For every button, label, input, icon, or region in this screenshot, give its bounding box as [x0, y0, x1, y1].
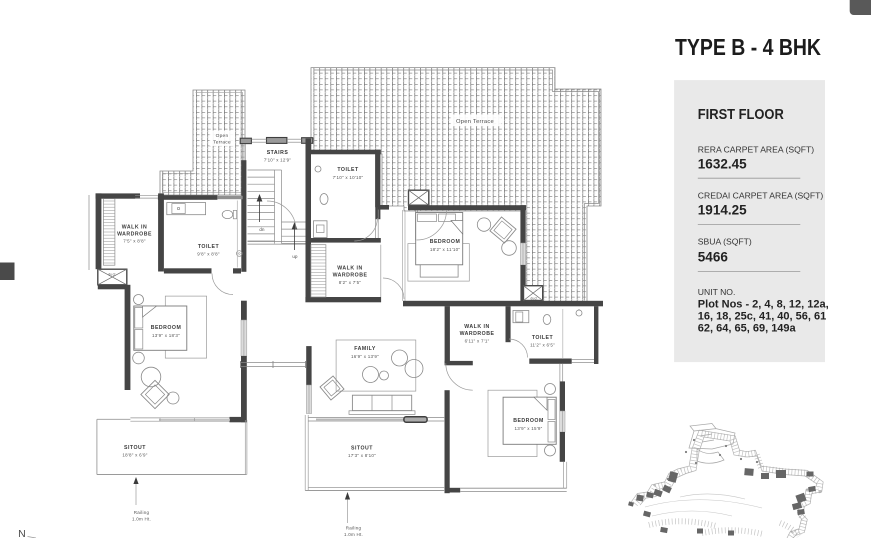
svg-text:BEDROOM: BEDROOM [430, 239, 461, 245]
svg-text:1914.25: 1914.25 [698, 203, 747, 218]
svg-text:up: up [292, 254, 298, 259]
svg-text:FAMILY: FAMILY [354, 346, 376, 352]
svg-text:8'2" x 7'5": 8'2" x 7'5" [339, 280, 362, 285]
svg-text:9'8" x 8'8": 9'8" x 8'8" [197, 252, 220, 257]
svg-text:FIRST FLOOR: FIRST FLOOR [698, 107, 784, 123]
svg-text:1.0m Ht.: 1.0m Ht. [132, 517, 151, 522]
svg-text:18'2" x 11'10": 18'2" x 11'10" [430, 247, 461, 252]
svg-text:Railing: Railing [346, 526, 362, 531]
svg-text:TYPE B - 4 BHK: TYPE B - 4 BHK [675, 34, 821, 60]
svg-text:Open Terrace: Open Terrace [456, 119, 494, 125]
svg-text:Open: Open [216, 133, 229, 139]
svg-text:WARDROBE: WARDROBE [333, 273, 368, 279]
svg-text:11'2" x 6'5": 11'2" x 6'5" [530, 343, 555, 348]
svg-text:16, 18, 25c, 41, 40, 56, 61: 16, 18, 25c, 41, 40, 56, 61 [698, 311, 826, 323]
svg-text:WALK IN: WALK IN [337, 266, 362, 272]
svg-text:6'11" x 7'1": 6'11" x 7'1" [465, 339, 490, 344]
svg-text:BEDROOM: BEDROOM [513, 418, 544, 424]
svg-text:13'9" x 15'9": 13'9" x 15'9" [515, 426, 543, 431]
svg-text:BEDROOM: BEDROOM [151, 325, 182, 331]
svg-text:UNIT NO.: UNIT NO. [698, 287, 736, 297]
svg-text:TOILET: TOILET [337, 167, 359, 173]
svg-text:16'9" x 13'9": 16'9" x 13'9" [351, 354, 379, 359]
svg-text:CREDAI CARPET AREA (SQFT): CREDAI CARPET AREA (SQFT) [698, 191, 824, 201]
svg-text:Railing: Railing [134, 510, 150, 515]
svg-text:SITOUT: SITOUT [351, 446, 373, 452]
svg-text:SBUA (SQFT): SBUA (SQFT) [698, 237, 752, 247]
svg-text:13'9" x 18'3": 13'9" x 18'3" [152, 333, 180, 338]
svg-text:duct: duct [108, 273, 115, 277]
svg-text:18'8" x 6'9": 18'8" x 6'9" [122, 453, 147, 458]
svg-text:WARDROBE: WARDROBE [460, 331, 495, 337]
svg-text:STAIRS: STAIRS [267, 150, 289, 156]
svg-text:7'10" x 10'10": 7'10" x 10'10" [333, 175, 364, 180]
svg-text:WARDROBE: WARDROBE [117, 232, 152, 238]
svg-text:1.0m Ht.: 1.0m Ht. [344, 532, 363, 537]
svg-text:N: N [18, 528, 26, 538]
svg-text:dn: dn [259, 227, 265, 232]
svg-text:Terrace: Terrace [213, 140, 231, 146]
svg-text:TOILET: TOILET [198, 244, 220, 250]
svg-text:1632.45: 1632.45 [698, 157, 747, 172]
svg-text:Plot Nos - 2, 4, 8, 12, 12a,: Plot Nos - 2, 4, 8, 12, 12a, [698, 299, 829, 311]
svg-text:TOILET: TOILET [532, 335, 554, 341]
svg-text:RERA CARPET AREA (SQFT): RERA CARPET AREA (SQFT) [698, 145, 814, 155]
svg-text:duct: duct [530, 297, 537, 301]
svg-text:7'10" x 12'9": 7'10" x 12'9" [264, 158, 292, 163]
svg-text:SITOUT: SITOUT [124, 445, 146, 451]
svg-text:WALK IN: WALK IN [122, 225, 147, 231]
svg-text:5466: 5466 [698, 250, 729, 265]
svg-text:17'3" x 8'10": 17'3" x 8'10" [348, 453, 376, 458]
svg-text:7'5" x 8'8": 7'5" x 8'8" [123, 239, 146, 244]
svg-text:WALK IN: WALK IN [464, 324, 489, 330]
svg-text:62, 64, 65, 69, 149a: 62, 64, 65, 69, 149a [698, 323, 797, 335]
